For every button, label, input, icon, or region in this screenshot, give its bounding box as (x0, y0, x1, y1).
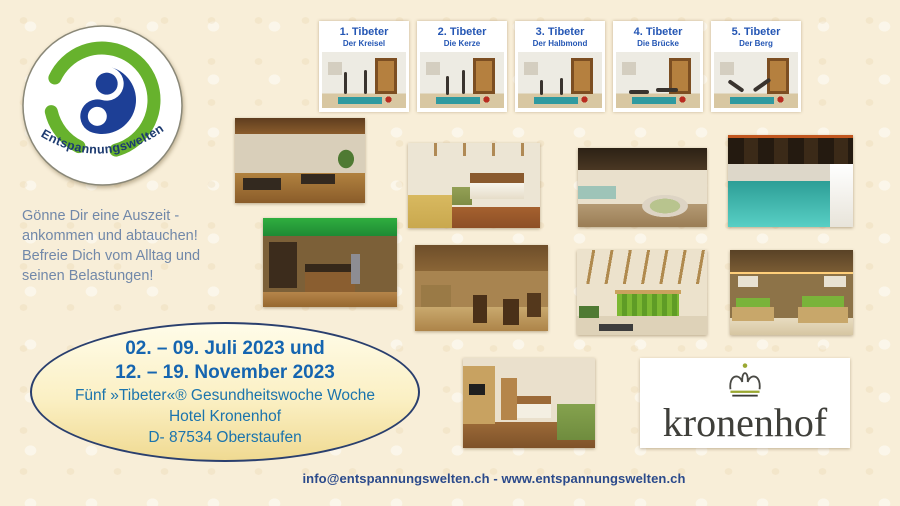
intro-line: Gönne Dir eine Auszeit - (22, 206, 247, 226)
program-line: Fünf »Tibeter«® Gesundheitswoche Woche (75, 385, 375, 406)
yoga-pose-photo-berg (714, 52, 798, 108)
crown-icon (717, 362, 773, 402)
photo-juice-bar (263, 218, 397, 307)
intro-line: ankommen und abtauchen! (22, 226, 247, 246)
intro-line: Befreie Dich vom Alltag und (22, 246, 247, 266)
photo-reception-lobby (577, 250, 707, 335)
exercise-subtitle: Die Brücke (613, 39, 703, 49)
photo-restaurant-lounge (235, 118, 365, 203)
kronenhof-logo: kronenhof (640, 358, 850, 448)
exercise-card-3: 3. Tibeter Der Halbmond (515, 21, 605, 112)
yin-yang-icon: Entspannungswelten (21, 24, 184, 187)
exercise-card-1: 1. Tibeter Der Kreisel (319, 21, 409, 112)
date-line-1: 02. – 09. Juli 2023 und (125, 337, 325, 361)
exercise-subtitle: Der Halbmond (515, 39, 605, 49)
intro-text: Gönne Dir eine Auszeit - ankommen und ab… (22, 206, 247, 286)
photo-whirlpool-spa (578, 148, 707, 227)
exercise-card-5: 5. Tibeter Der Berg (711, 21, 801, 112)
exercise-subtitle: Der Berg (711, 39, 801, 49)
kronenhof-logo-text: kronenhof (663, 402, 827, 444)
exercise-title: 3. Tibeter (515, 26, 605, 39)
photo-guest-room (408, 143, 540, 228)
yoga-pose-photo-halbmond (518, 52, 602, 108)
yoga-pose-photo-kreisel (322, 52, 406, 108)
exercise-card-2: 2. Tibeter Die Kerze (417, 21, 507, 112)
exercise-title: 2. Tibeter (417, 26, 507, 39)
photo-rustic-restaurant (415, 245, 548, 331)
exercise-title: 4. Tibeter (613, 26, 703, 39)
yoga-pose-photo-kerze (420, 52, 504, 108)
photo-relaxation-room (730, 250, 853, 335)
yoga-pose-photo-bruecke (616, 52, 700, 108)
photo-indoor-pool (728, 135, 853, 227)
flyer-slide: Entspannungswelten 1. Tibeter Der Kreise… (0, 0, 900, 506)
contact-line: info@entspannungswelten.ch - www.entspan… (0, 471, 900, 486)
exercise-title: 5. Tibeter (711, 26, 801, 39)
date-line-2: 12. – 19. November 2023 (115, 361, 335, 385)
hotel-line: Hotel Kronenhof (169, 406, 281, 427)
tibeter-exercise-row: 1. Tibeter Der Kreisel 2. Tibeter Die Ke… (319, 21, 801, 112)
exercise-card-4: 4. Tibeter Die Brücke (613, 21, 703, 112)
dates-oval: 02. – 09. Juli 2023 und 12. – 19. Novemb… (30, 322, 420, 462)
photo-guest-room-2 (463, 358, 595, 448)
exercise-title: 1. Tibeter (319, 26, 409, 39)
entspannungswelten-logo: Entspannungswelten (21, 24, 184, 187)
exercise-subtitle: Der Kreisel (319, 39, 409, 49)
address-line: D- 87534 Oberstaufen (148, 427, 301, 448)
exercise-subtitle: Die Kerze (417, 39, 507, 49)
intro-line: seinen Belastungen! (22, 266, 247, 286)
